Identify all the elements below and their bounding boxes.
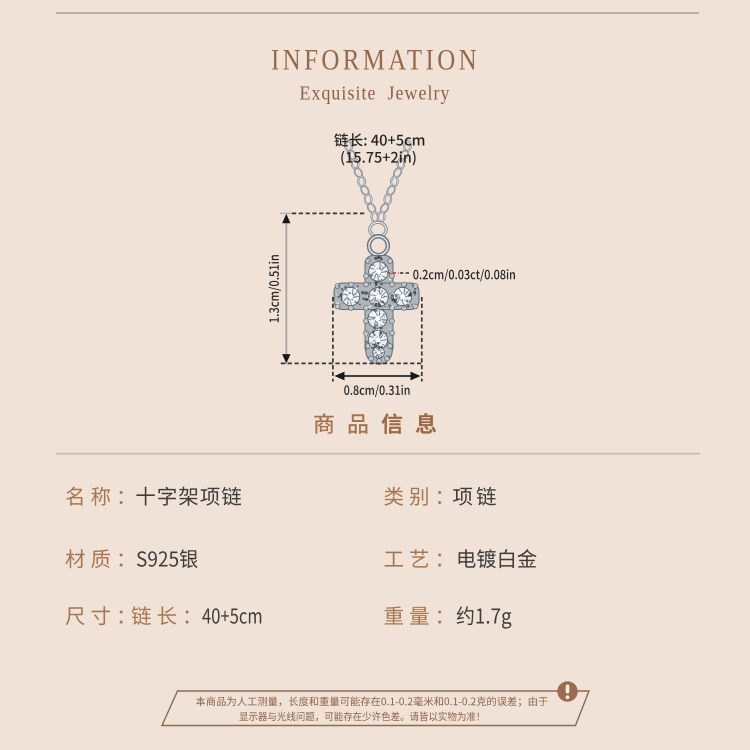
svg-text:INFORMATION: INFORMATION xyxy=(271,45,480,77)
svg-text:Exquisite Jewelry: Exquisite Jewelry xyxy=(300,83,451,105)
